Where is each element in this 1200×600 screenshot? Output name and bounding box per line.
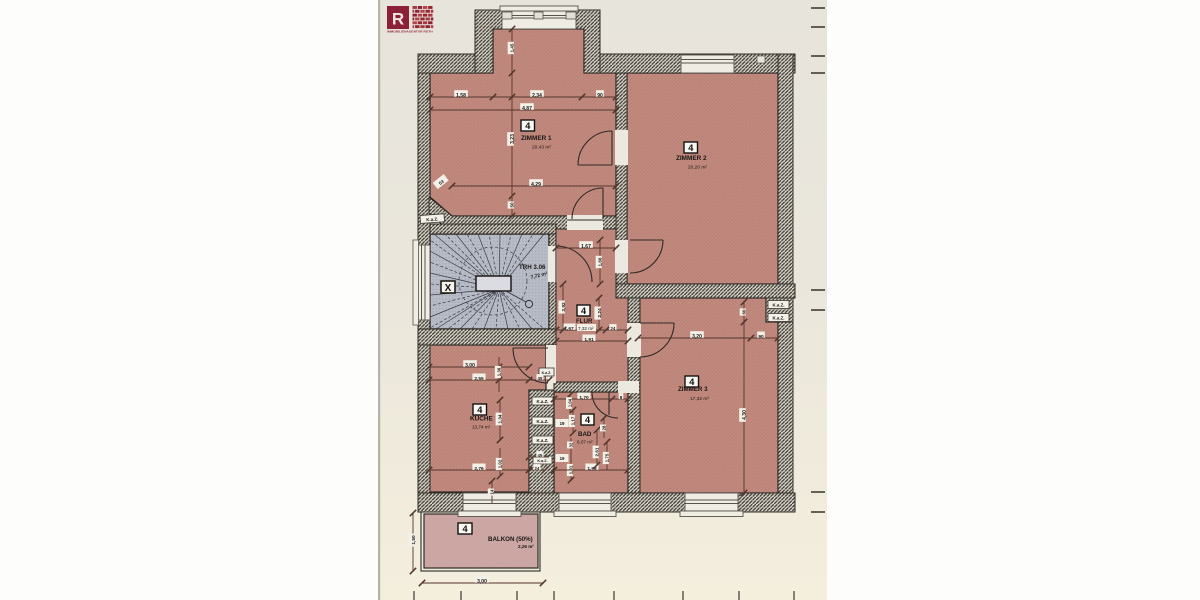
svg-text:45: 45 (538, 453, 543, 458)
svg-text:1,36: 1,36 (497, 367, 502, 376)
svg-text:1,04: 1,04 (568, 398, 573, 407)
svg-text:K.a.Z.: K.a.Z. (773, 316, 785, 321)
svg-text:R: R (392, 10, 404, 29)
svg-text:K.a.Z.: K.a.Z. (773, 303, 785, 308)
svg-text:3,23: 3,23 (510, 134, 516, 144)
svg-text:4: 4 (581, 306, 587, 316)
svg-text:13,74 m²: 13,74 m² (472, 425, 491, 430)
svg-text:4,30: 4,30 (742, 410, 748, 420)
svg-text:ZIMMER 1: ZIMMER 1 (521, 135, 552, 142)
svg-text:4: 4 (525, 121, 531, 131)
svg-text:KÜCHE: KÜCHE (470, 414, 493, 423)
svg-text:4: 4 (585, 415, 591, 425)
svg-text:60: 60 (742, 309, 747, 315)
svg-text:1,67: 1,67 (581, 244, 591, 250)
svg-text:19: 19 (560, 421, 565, 426)
svg-text:TRH 3.06: TRH 3.06 (519, 264, 546, 271)
svg-text:2,34: 2,34 (532, 93, 542, 99)
svg-text:7,32 m²: 7,32 m² (578, 326, 594, 331)
svg-text:4,29: 4,29 (531, 182, 541, 188)
svg-text:BAD: BAD (578, 431, 592, 438)
svg-text:K.a.Z.: K.a.Z. (537, 438, 549, 443)
svg-text:4: 4 (688, 143, 694, 153)
svg-text:20,20 m²: 20,20 m² (688, 165, 707, 171)
svg-text:1,17: 1,17 (571, 416, 576, 425)
svg-text:2,55: 2,55 (474, 376, 484, 382)
svg-text:3,20: 3,20 (692, 334, 702, 340)
svg-text:2,26 m²: 2,26 m² (518, 544, 534, 549)
svg-text:2,61: 2,61 (595, 447, 600, 456)
svg-text:28: 28 (602, 425, 607, 430)
svg-text:19: 19 (560, 456, 565, 461)
svg-text:1,91: 1,91 (584, 337, 594, 343)
svg-text:4: 4 (462, 524, 468, 534)
svg-text:4: 4 (477, 405, 483, 415)
svg-text:14: 14 (490, 489, 495, 494)
svg-text:6,07 m²: 6,07 m² (577, 440, 593, 445)
svg-text:3,00: 3,00 (477, 579, 487, 585)
svg-text:1,45: 1,45 (510, 43, 515, 52)
svg-text:20,43 m²: 20,43 m² (532, 145, 551, 151)
svg-text:4,87: 4,87 (522, 106, 532, 112)
svg-text:FLUR: FLUR (576, 318, 593, 325)
svg-text:50: 50 (510, 202, 515, 208)
svg-text:1,66: 1,66 (598, 257, 603, 266)
svg-text:IMMOBILIENAGENTUR ROTH: IMMOBILIENAGENTUR ROTH (387, 29, 433, 33)
svg-text:1,58: 1,58 (456, 93, 466, 99)
svg-text:BALKON (50%): BALKON (50%) (488, 536, 533, 543)
svg-text:90: 90 (597, 93, 603, 99)
svg-text:2,76: 2,76 (474, 466, 484, 472)
svg-text:K.a.Z.: K.a.Z. (537, 399, 549, 404)
svg-text:90: 90 (758, 334, 764, 340)
svg-text:K.a.Z.: K.a.Z. (537, 419, 549, 424)
svg-text:3,00: 3,00 (465, 363, 475, 369)
svg-text:1,70: 1,70 (579, 395, 589, 401)
svg-text:1,02: 1,02 (498, 459, 503, 468)
svg-text:24: 24 (535, 466, 540, 471)
svg-text:K.a.Z.: K.a.Z. (426, 216, 438, 222)
svg-text:17,32 m²: 17,32 m² (690, 396, 709, 402)
svg-text:3,92: 3,92 (561, 302, 567, 312)
svg-text:1,50: 1,50 (411, 535, 417, 545)
svg-text:K.a.Z.: K.a.Z. (537, 459, 547, 463)
svg-text:ZIMMER 2: ZIMMER 2 (676, 155, 707, 162)
svg-text:24: 24 (611, 326, 616, 331)
svg-text:45: 45 (538, 376, 543, 381)
svg-text:1,75: 1,75 (605, 453, 610, 462)
svg-text:32: 32 (569, 442, 574, 447)
svg-text:ZIMMER 3: ZIMMER 3 (678, 386, 708, 393)
svg-text:2,24: 2,24 (597, 308, 603, 318)
svg-text:X: X (445, 283, 452, 294)
svg-text:1,34: 1,34 (498, 414, 503, 423)
